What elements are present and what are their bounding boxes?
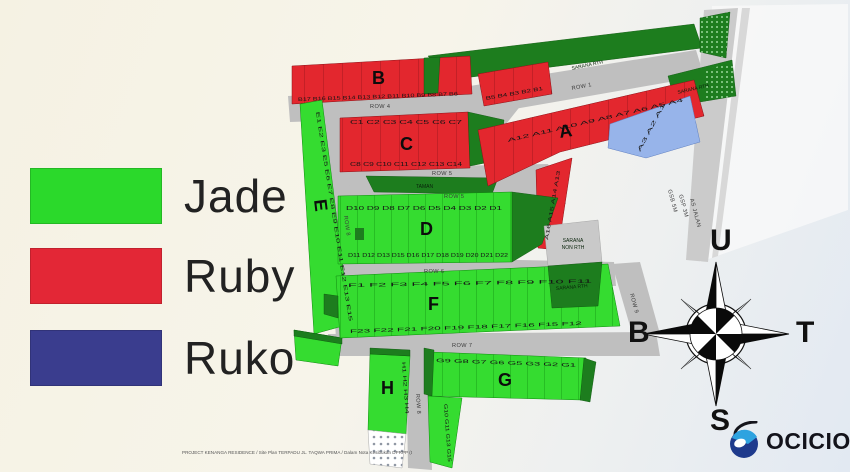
compass-west-label: B: [628, 316, 650, 350]
lots-d-top: D10 D9 D8 D7 D6 D5 D4 D3 D2 D1: [346, 206, 502, 212]
legend-label-ruby: Ruby: [184, 249, 295, 303]
legend-label-ruko: Ruko: [184, 331, 295, 385]
fine-print: PROJECT KENANGA RESIDENCE / Site Plan TE…: [182, 450, 412, 455]
block-letter-c: C: [400, 134, 413, 154]
ocicio-logo: OCICIO: [726, 421, 850, 461]
block-letter-e: E: [310, 198, 331, 212]
ocicio-logo-icon: [726, 421, 764, 461]
compass-rose: U T S B: [628, 224, 812, 436]
block-f-green-notch: [324, 294, 338, 318]
label-row7: ROW 7: [452, 343, 472, 349]
compass-north-label: U: [710, 224, 732, 258]
lots-c-bottom: C8 C9 C10 C11 C12 C13 C14: [350, 162, 462, 168]
ruby-swatch: [30, 248, 162, 304]
area-green-notch-dots: [700, 12, 730, 58]
compass-east-label: T: [796, 316, 814, 350]
block-letter-h: H: [381, 378, 394, 398]
block-g-left-edge: [424, 348, 434, 396]
block-letter-g: G: [498, 370, 512, 390]
label-gsp: GSP 3M: [677, 194, 689, 218]
ruko-swatch: [30, 330, 162, 386]
legend-item-ruby: Ruby: [30, 248, 295, 304]
jade-swatch: [30, 168, 162, 224]
lots-d-bottom: D11 D12 D13 D15 D16 D17 D18 D19 D20 D21 …: [348, 253, 508, 259]
label-row5-upper: ROW 5: [432, 171, 452, 177]
sarana-areas: [544, 220, 602, 308]
area-hatched-dots: [368, 430, 406, 468]
block-d-green-notch: [355, 228, 364, 240]
legend-item-ruko: Ruko: [30, 330, 295, 386]
block-b-green-notch: [424, 57, 440, 94]
block-letter-b: B: [372, 68, 385, 88]
ocicio-logo-text: OCICIO: [766, 428, 850, 455]
label-gsb: GSB 5M: [666, 189, 678, 213]
label-row4: ROW 4: [370, 104, 390, 110]
siteplan-page: B17 B16 B15 B14 B13 B12 B11 B10 B9 B8 B7…: [0, 0, 850, 472]
label-sarana-non-rth-2: NON RTH: [562, 245, 585, 251]
block-letter-d: D: [420, 219, 433, 239]
legend-item-jade: Jade: [30, 168, 288, 224]
legend-label-jade: Jade: [184, 169, 288, 223]
label-row6: ROW 6: [424, 269, 444, 275]
label-sarana-non-rth-1: SARANA: [563, 238, 584, 244]
block-letter-f: F: [428, 294, 439, 314]
lots-c-top: C1 C2 C3 C4 C5 C6 C7: [350, 120, 462, 126]
label-row5-lower: ROW 5: [444, 194, 464, 200]
label-taman: TAMAN: [416, 184, 434, 190]
